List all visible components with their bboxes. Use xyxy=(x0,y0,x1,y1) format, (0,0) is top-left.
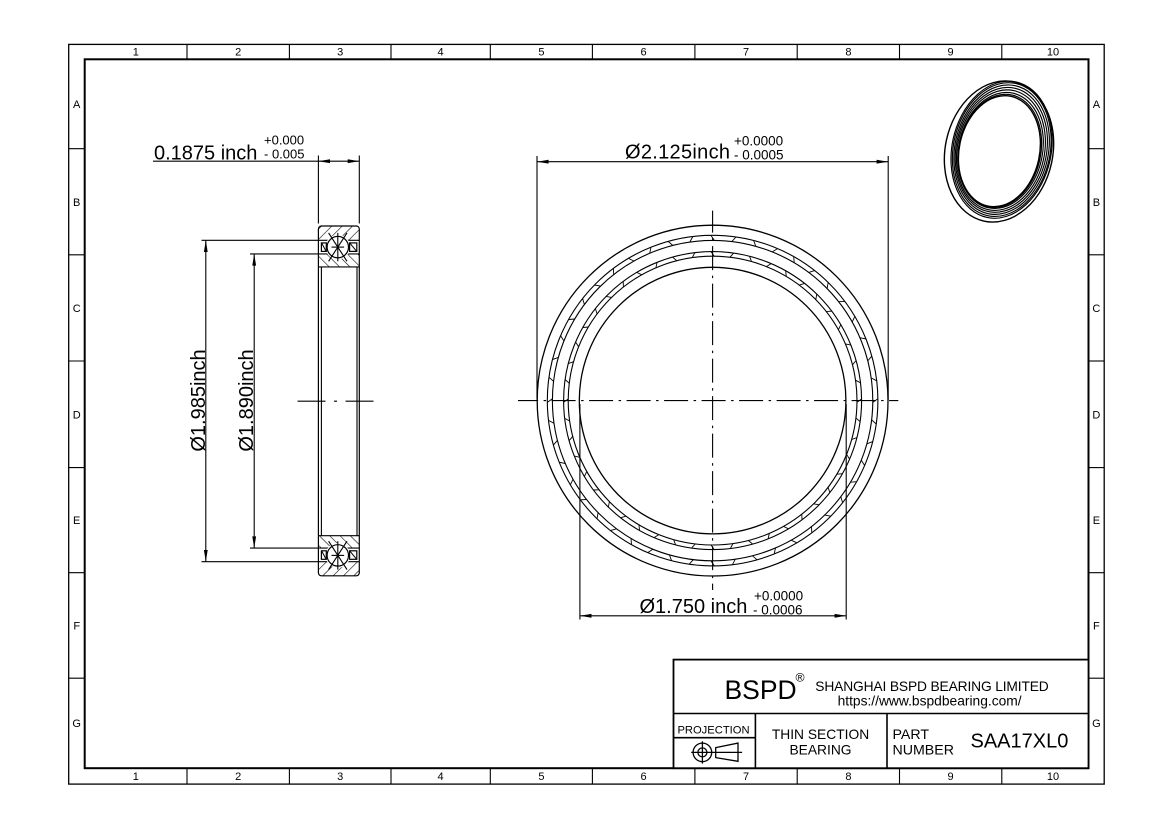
svg-text:9: 9 xyxy=(948,47,954,59)
svg-text:https://www.bspdbearing.com/: https://www.bspdbearing.com/ xyxy=(838,693,1022,708)
svg-text:BSPD: BSPD xyxy=(725,675,797,705)
svg-text:SAA17XL0: SAA17XL0 xyxy=(971,730,1069,752)
svg-text:1: 1 xyxy=(133,771,139,783)
svg-text:PART: PART xyxy=(893,727,930,743)
svg-text:D: D xyxy=(1092,409,1100,421)
svg-text:G: G xyxy=(1092,718,1101,730)
svg-text:B: B xyxy=(73,197,80,209)
svg-text:- 0.0006: - 0.0006 xyxy=(753,602,803,617)
svg-text:7: 7 xyxy=(743,47,749,59)
svg-text:A: A xyxy=(1093,99,1101,111)
svg-text:+0.0000: +0.0000 xyxy=(734,134,783,149)
svg-text:®: ® xyxy=(796,670,805,684)
svg-text:E: E xyxy=(73,515,80,527)
svg-text:C: C xyxy=(73,303,81,315)
svg-text:F: F xyxy=(73,621,80,633)
svg-text:Ø2.125inch: Ø2.125inch xyxy=(625,142,730,164)
svg-text:B: B xyxy=(1093,197,1100,209)
svg-text:10: 10 xyxy=(1047,771,1059,783)
svg-text:+0.0000: +0.0000 xyxy=(754,588,803,603)
svg-text:10: 10 xyxy=(1047,47,1059,59)
svg-text:E: E xyxy=(1093,515,1100,527)
svg-text:5: 5 xyxy=(538,47,544,59)
svg-text:8: 8 xyxy=(845,771,851,783)
svg-text:A: A xyxy=(73,99,81,111)
svg-text:6: 6 xyxy=(641,47,647,59)
svg-text:4: 4 xyxy=(438,771,444,783)
svg-text:0.1875 inch: 0.1875 inch xyxy=(154,143,257,165)
svg-text:C: C xyxy=(1092,303,1100,315)
svg-text:F: F xyxy=(1093,621,1100,633)
svg-text:3: 3 xyxy=(337,771,343,783)
svg-text:NUMBER: NUMBER xyxy=(893,742,954,758)
svg-text:Ø1.750 inch: Ø1.750 inch xyxy=(640,596,748,618)
svg-text:9: 9 xyxy=(948,771,954,783)
svg-text:2: 2 xyxy=(235,771,241,783)
svg-text:2: 2 xyxy=(235,47,241,59)
svg-text:- 0.0005: - 0.0005 xyxy=(734,148,784,163)
svg-text:3: 3 xyxy=(337,47,343,59)
svg-text:6: 6 xyxy=(641,771,647,783)
svg-text:8: 8 xyxy=(845,47,851,59)
svg-text:4: 4 xyxy=(438,47,444,59)
svg-text:SHANGHAI BSPD BEARING LIMITED: SHANGHAI BSPD BEARING LIMITED xyxy=(815,679,1048,694)
svg-text:D: D xyxy=(73,409,81,421)
svg-text:PROJECTION: PROJECTION xyxy=(677,725,749,737)
svg-text:THIN SECTION: THIN SECTION xyxy=(772,727,869,742)
svg-text:1: 1 xyxy=(133,47,139,59)
svg-text:5: 5 xyxy=(538,771,544,783)
svg-text:7: 7 xyxy=(743,771,749,783)
svg-text:G: G xyxy=(72,718,81,730)
svg-text:Ø1.890inch: Ø1.890inch xyxy=(236,349,258,451)
svg-text:BEARING: BEARING xyxy=(789,742,851,757)
svg-text:- 0.005: - 0.005 xyxy=(264,146,304,161)
svg-text:Ø1.985inch: Ø1.985inch xyxy=(188,349,210,451)
